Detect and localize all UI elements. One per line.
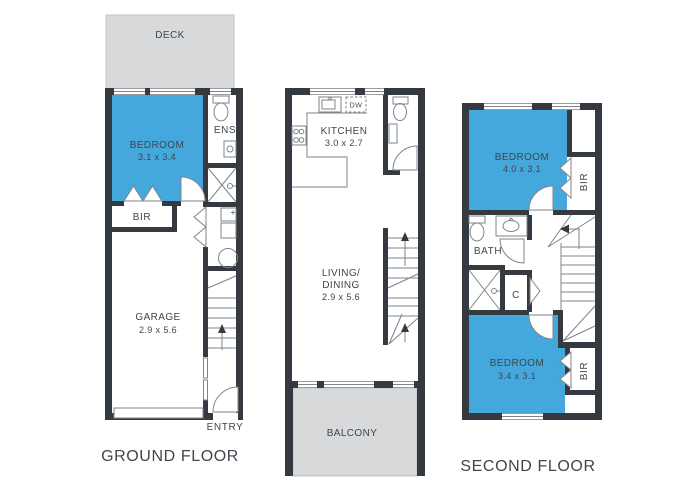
bath-label: BATH	[474, 246, 502, 257]
kitchen-size: 3.0 x 2.7	[325, 138, 363, 148]
ground-floor-plan: DECK BEDROOM 3.1 x 3.4 BIR ENS GARAGE 2.…	[101, 15, 243, 465]
closet-label: C	[512, 290, 520, 301]
living-size: 2.9 x 5.6	[322, 292, 360, 302]
ground-floor-title: GROUND FLOOR	[101, 448, 239, 465]
ens-label: ENS	[214, 125, 236, 136]
balcony-label: BALCONY	[327, 428, 378, 439]
bedroom-rear-size: 3.4 x 3.1	[498, 371, 536, 381]
second-floor-title: SECOND FLOOR	[460, 458, 595, 475]
bedroom-front-label: BEDROOM	[495, 152, 549, 163]
ground-bir-label: BIR	[133, 212, 151, 223]
bedroom-front-size: 4.0 x 3.1	[503, 164, 541, 174]
dishwasher-label: DW	[350, 103, 363, 110]
garage-size: 2.9 x 5.6	[139, 325, 177, 335]
floor-plan-drawing: DECK BEDROOM 3.1 x 3.4 BIR ENS GARAGE 2.…	[0, 0, 700, 500]
living-label-line1: LIVING/	[322, 268, 360, 279]
bir-rear-label: BIR	[579, 362, 590, 380]
ground-bedroom-size: 3.1 x 3.4	[138, 152, 176, 162]
deck-label: DECK	[155, 30, 184, 41]
garage-door-icon	[114, 408, 203, 418]
floor-plan-page: DECK BEDROOM 3.1 x 3.4 BIR ENS GARAGE 2.…	[0, 0, 700, 500]
living-label-line2: DINING	[322, 280, 359, 291]
bir-front-label: BIR	[579, 173, 590, 191]
entry-label: ENTRY	[207, 422, 244, 433]
deck-area	[106, 15, 234, 89]
kitchen-label: KITCHEN	[321, 126, 368, 137]
second-floor-plan: BEDROOM 4.0 x 3.1 BIR BATH C BEDROOM 3.4…	[460, 103, 602, 475]
garage-label: GARAGE	[135, 312, 180, 323]
ground-bedroom-label: BEDROOM	[130, 140, 184, 151]
bedroom-rear-label: BEDROOM	[490, 358, 544, 369]
first-floor-plan: KITCHEN 3.0 x 2.7 DW LIVING/ DINING 2.9 …	[285, 88, 425, 476]
